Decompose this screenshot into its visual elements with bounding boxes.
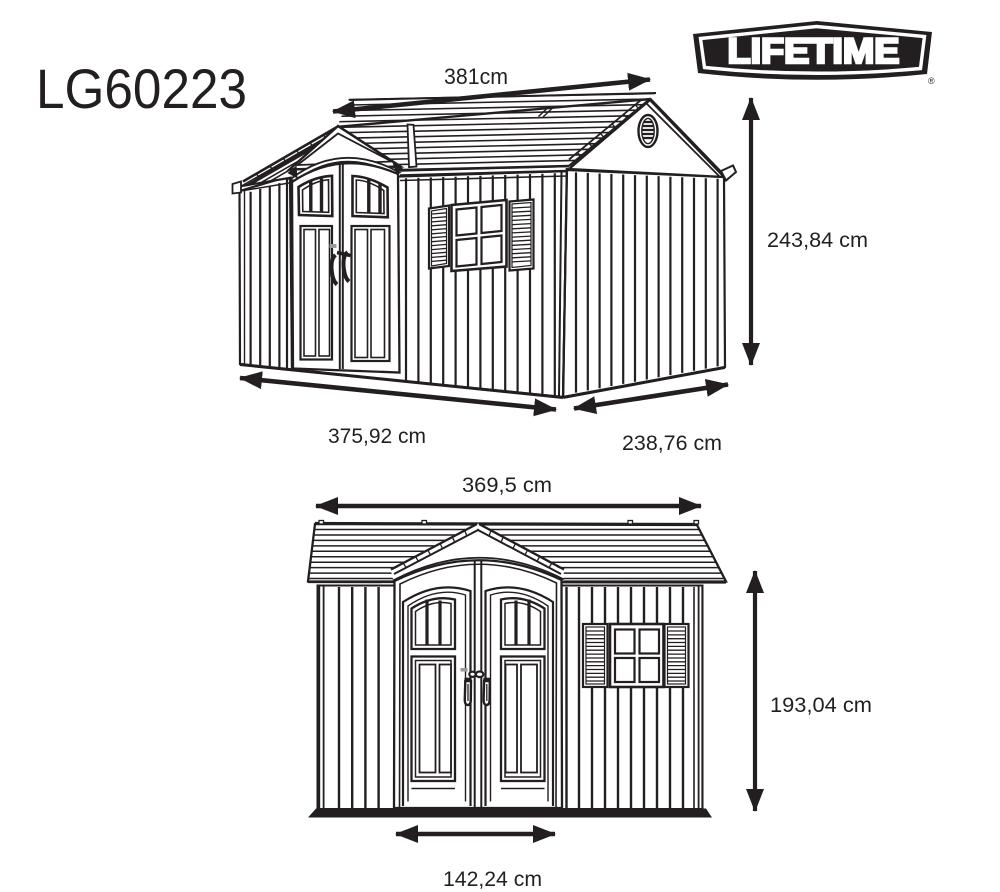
svg-text:LIFETIME: LIFETIME <box>728 32 900 71</box>
svg-text:369,5 cm: 369,5 cm <box>462 474 552 497</box>
svg-text:243,84 cm: 243,84 cm <box>767 229 868 252</box>
svg-text:375,92 cm: 375,92 cm <box>328 425 426 448</box>
svg-text:LG60223: LG60223 <box>36 58 247 120</box>
svg-text:®: ® <box>928 76 935 86</box>
svg-text:142,24 cm: 142,24 cm <box>443 868 542 891</box>
svg-text:381cm: 381cm <box>444 64 508 89</box>
svg-text:238,76 cm: 238,76 cm <box>622 432 722 455</box>
svg-text:193,04 cm: 193,04 cm <box>770 694 872 717</box>
